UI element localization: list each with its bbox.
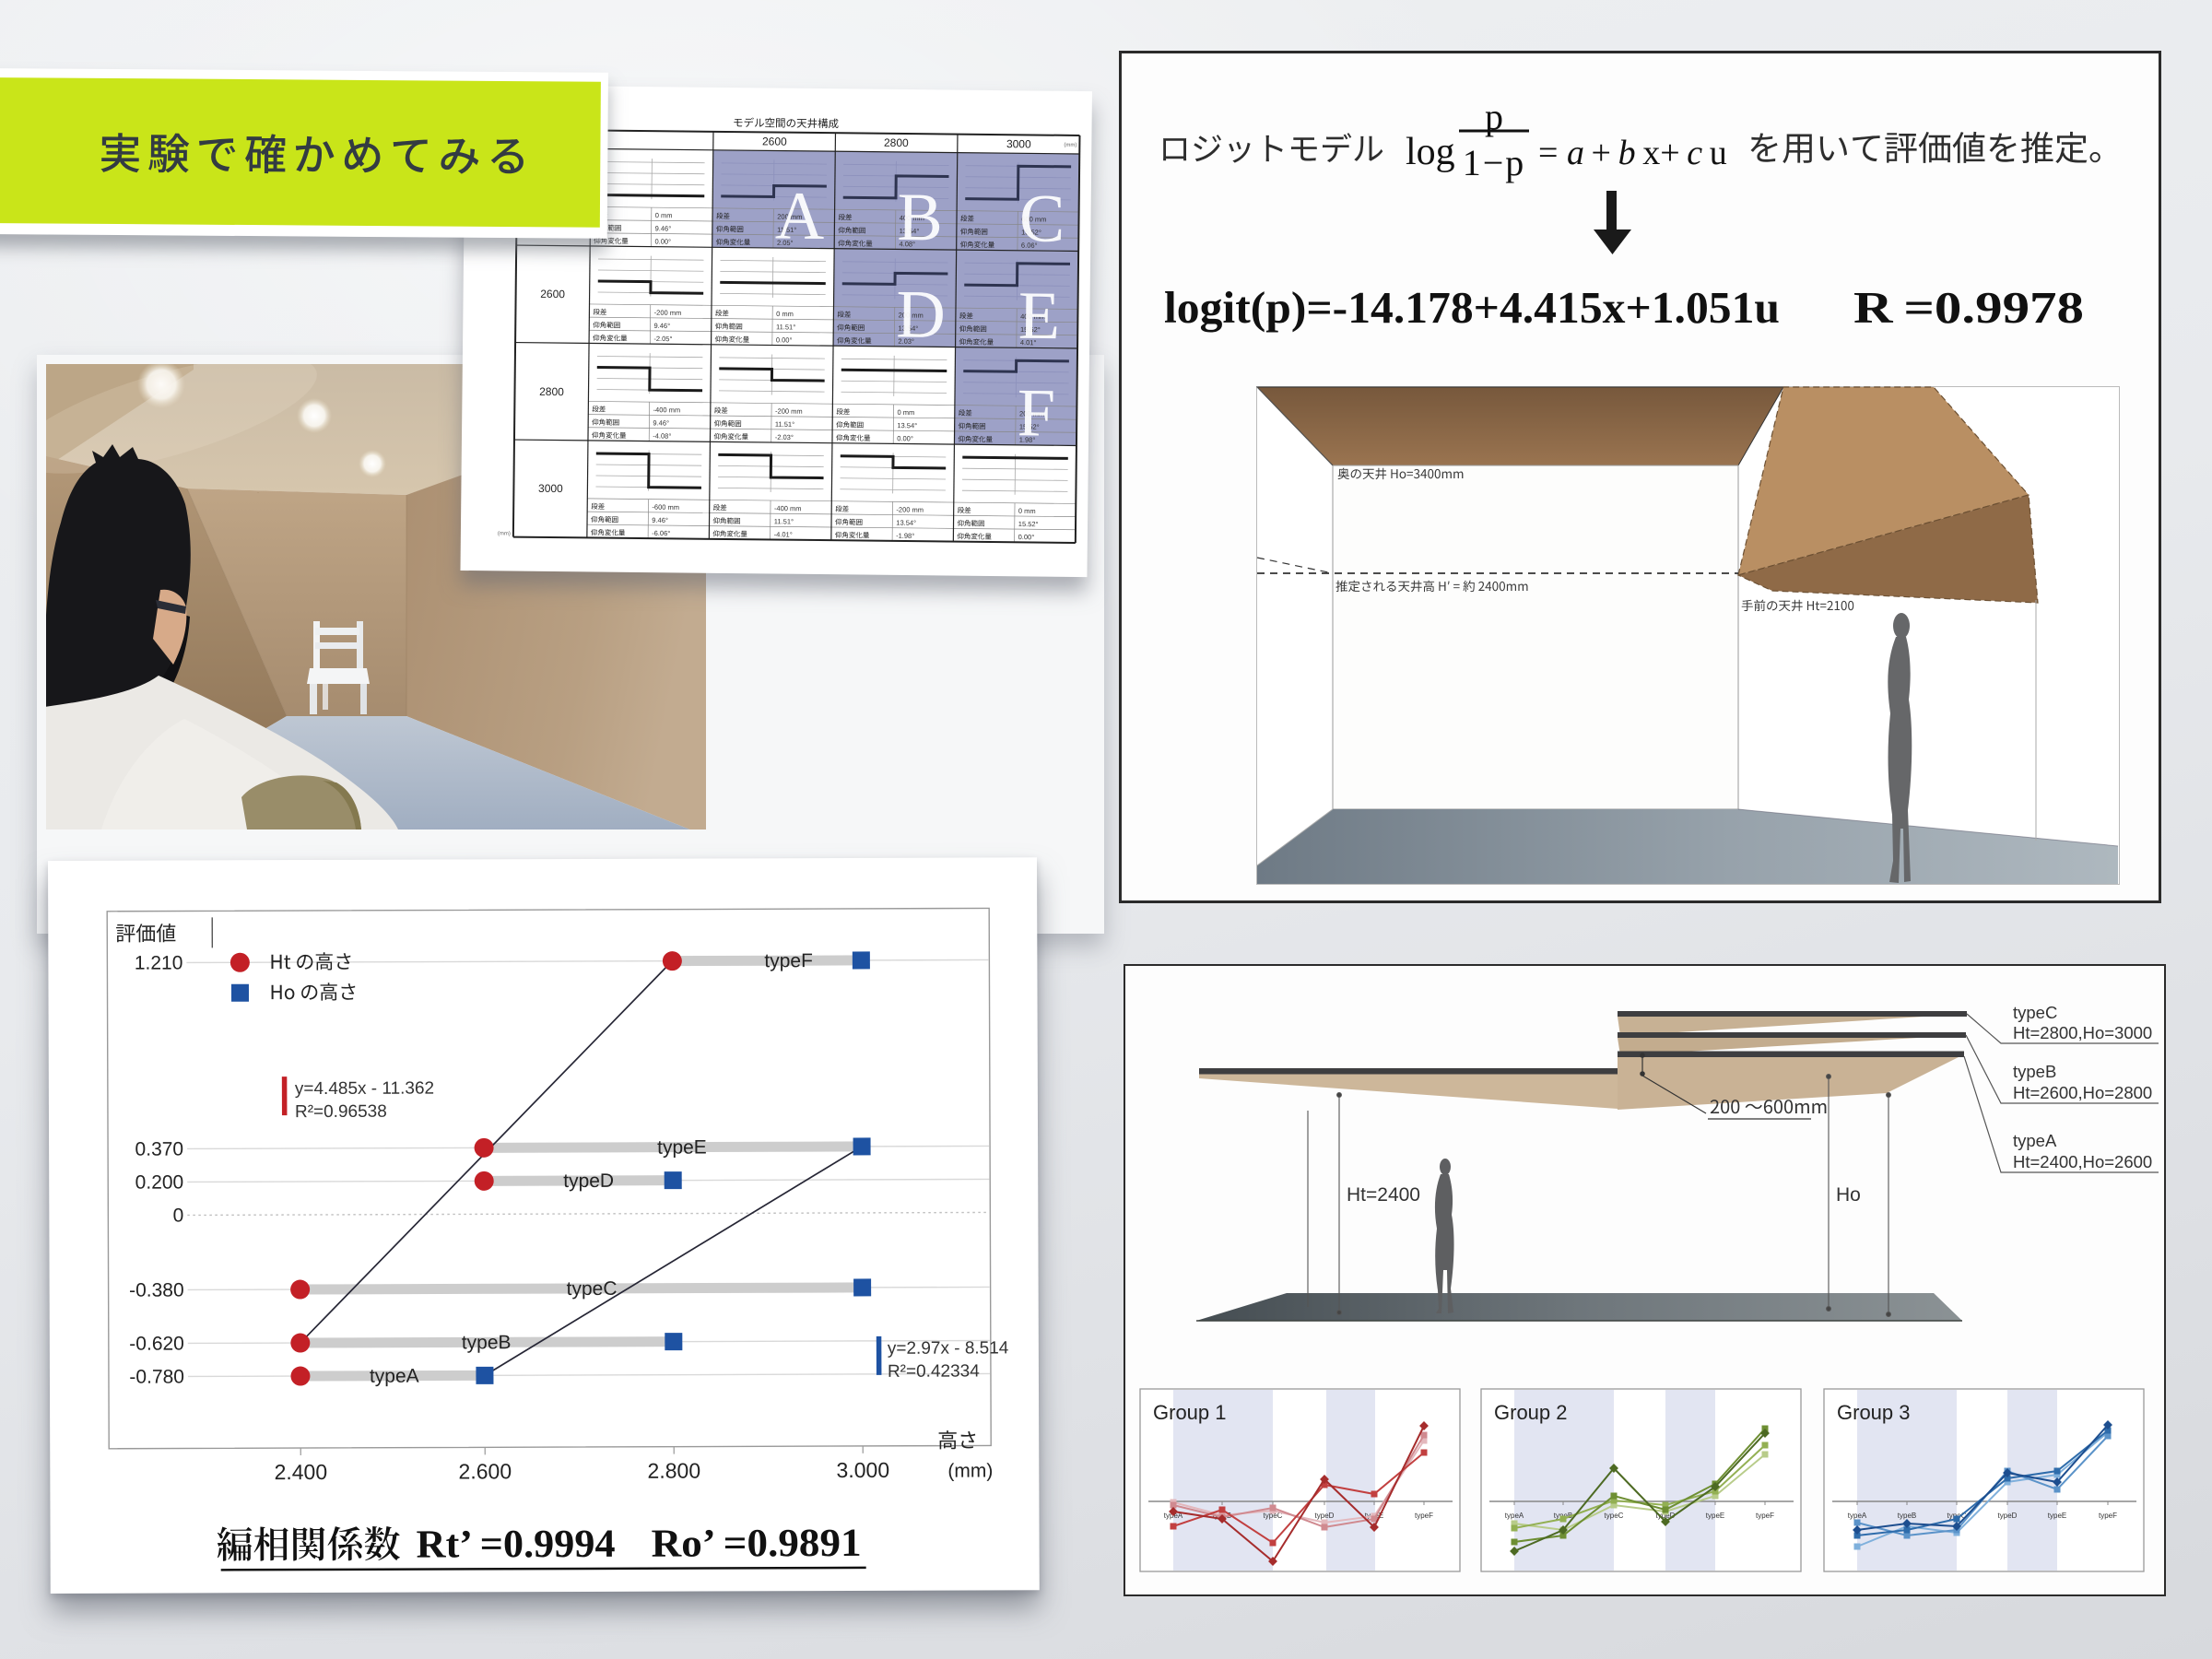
- svg-text:logit(p)=-14.178+4.415x+1.051u: logit(p)=-14.178+4.415x+1.051u: [1164, 282, 1780, 333]
- svg-text:2600: 2600: [762, 135, 787, 147]
- svg-text:typeD: typeD: [1998, 1512, 2018, 1520]
- svg-text:typeC: typeC: [2013, 1003, 2057, 1022]
- svg-text:typeF: typeF: [1756, 1512, 1774, 1520]
- svg-text:13.54°: 13.54°: [897, 421, 917, 429]
- svg-text:3000: 3000: [1006, 137, 1031, 150]
- svg-text:11.51°: 11.51°: [776, 323, 795, 331]
- svg-text:E: E: [1018, 278, 1060, 354]
- svg-text:1−p: 1−p: [1463, 142, 1526, 183]
- svg-text:typeF: typeF: [2099, 1512, 2117, 1520]
- svg-text:2.800: 2.800: [647, 1459, 700, 1483]
- svg-text:0.00°: 0.00°: [776, 335, 793, 344]
- svg-text:-400 mm: -400 mm: [653, 406, 681, 414]
- svg-text:(mm): (mm): [498, 531, 511, 536]
- svg-text:3.000: 3.000: [836, 1458, 889, 1482]
- svg-text:13.54°: 13.54°: [896, 519, 916, 527]
- svg-text:y=2.97x - 8.514: y=2.97x - 8.514: [888, 1338, 1009, 1358]
- svg-text:2800: 2800: [539, 385, 564, 398]
- svg-text:B: B: [897, 180, 943, 256]
- svg-text:Ht=2400: Ht=2400: [1347, 1184, 1420, 1206]
- svg-text:1.210: 1.210: [135, 952, 183, 973]
- svg-text:A: A: [775, 179, 825, 255]
- svg-text:-6.06°: -6.06°: [652, 529, 670, 537]
- svg-text:0.00°: 0.00°: [1018, 533, 1035, 541]
- svg-text:Ht=2800,Ho=3000: Ht=2800,Ho=3000: [2013, 1023, 2152, 1042]
- svg-text:2.400: 2.400: [274, 1460, 327, 1484]
- svg-text:0.200: 0.200: [135, 1171, 184, 1193]
- svg-text:0 mm: 0 mm: [776, 310, 794, 318]
- svg-text:typeA: typeA: [2013, 1131, 2057, 1150]
- svg-text:typeF: typeF: [764, 950, 813, 971]
- svg-text:Group 3: Group 3: [1837, 1401, 1911, 1424]
- svg-text:typeE: typeE: [1706, 1512, 1724, 1520]
- svg-text:typeD: typeD: [1315, 1512, 1335, 1520]
- svg-text:0 mm: 0 mm: [898, 408, 915, 417]
- svg-text:R =0.9978: R =0.9978: [1853, 282, 2084, 333]
- svg-text:Ro’ =0.9891: Ro’ =0.9891: [652, 1522, 862, 1566]
- svg-text:Ho: Ho: [1836, 1184, 1861, 1206]
- svg-text:0.00°: 0.00°: [897, 434, 913, 442]
- svg-text:(mm): (mm): [947, 1460, 993, 1481]
- svg-text:typeA: typeA: [370, 1366, 419, 1387]
- svg-text:0 mm: 0 mm: [655, 211, 673, 219]
- svg-text:y=4.485x - 11.362: y=4.485x - 11.362: [295, 1079, 434, 1100]
- svg-text:typeE: typeE: [657, 1137, 707, 1159]
- svg-text:R²=0.42334: R²=0.42334: [888, 1361, 980, 1381]
- svg-text:11.51°: 11.51°: [774, 517, 794, 525]
- svg-text:(mm): (mm): [1064, 143, 1077, 148]
- svg-text:3000: 3000: [538, 482, 563, 495]
- svg-text:typeB: typeB: [1898, 1512, 1916, 1520]
- svg-text:Rt’ =0.9994: Rt’ =0.9994: [417, 1523, 616, 1567]
- svg-text:R²=0.96538: R²=0.96538: [295, 1102, 387, 1122]
- svg-text:-400 mm: -400 mm: [774, 504, 802, 512]
- svg-text:typeD: typeD: [563, 1171, 614, 1192]
- svg-text:Group 2: Group 2: [1494, 1401, 1568, 1424]
- svg-text:typeC: typeC: [567, 1278, 618, 1300]
- svg-text:-600 mm: -600 mm: [652, 503, 679, 512]
- svg-text:-200 mm: -200 mm: [775, 407, 803, 416]
- svg-text:9.46°: 9.46°: [652, 516, 668, 524]
- svg-text:-4.08°: -4.08°: [653, 431, 671, 440]
- svg-text:Ht=2600,Ho=2800: Ht=2600,Ho=2800: [2013, 1083, 2152, 1102]
- svg-text:0: 0: [173, 1205, 184, 1226]
- svg-text:typeE: typeE: [2048, 1512, 2066, 1520]
- svg-text:-0.780: -0.780: [129, 1366, 184, 1387]
- svg-text:typeF: typeF: [1415, 1512, 1433, 1520]
- svg-text:C: C: [1019, 181, 1065, 257]
- svg-text:= a + b x+ c u: = a + b x+ c u: [1538, 134, 1727, 172]
- svg-text:-200 mm: -200 mm: [896, 505, 924, 513]
- svg-text:typeB: typeB: [2013, 1062, 2056, 1081]
- svg-text:2.600: 2.600: [458, 1459, 512, 1483]
- svg-text:0.00°: 0.00°: [654, 237, 671, 245]
- svg-text:-1.98°: -1.98°: [896, 532, 914, 540]
- svg-text:15.52°: 15.52°: [1018, 520, 1039, 528]
- svg-text:-0.620: -0.620: [129, 1333, 184, 1354]
- svg-text:typeA: typeA: [1848, 1512, 1867, 1520]
- svg-text:9.46°: 9.46°: [653, 418, 669, 427]
- svg-text:typeA: typeA: [1505, 1512, 1524, 1520]
- svg-text:F: F: [1017, 375, 1055, 451]
- svg-text:typeB: typeB: [462, 1332, 512, 1353]
- svg-text:Group 1: Group 1: [1153, 1401, 1227, 1424]
- svg-text:-2.03°: -2.03°: [775, 433, 794, 441]
- svg-text:-0.380: -0.380: [129, 1279, 184, 1300]
- svg-text:9.46°: 9.46°: [655, 224, 672, 232]
- svg-text:0 mm: 0 mm: [1018, 507, 1036, 515]
- svg-text:-200 mm: -200 mm: [654, 309, 682, 317]
- svg-text:-4.01°: -4.01°: [774, 530, 793, 538]
- svg-text:-2.05°: -2.05°: [653, 335, 672, 343]
- svg-text:D: D: [896, 276, 946, 353]
- svg-text:0.370: 0.370: [135, 1138, 183, 1159]
- svg-text:log: log: [1406, 131, 1455, 173]
- svg-text:typeC: typeC: [1605, 1512, 1624, 1520]
- svg-text:2600: 2600: [540, 288, 565, 300]
- svg-text:2800: 2800: [884, 136, 909, 149]
- svg-text:11.51°: 11.51°: [775, 420, 794, 429]
- svg-text:Ht=2400,Ho=2600: Ht=2400,Ho=2600: [2013, 1152, 2152, 1171]
- svg-text:9.46°: 9.46°: [653, 322, 670, 330]
